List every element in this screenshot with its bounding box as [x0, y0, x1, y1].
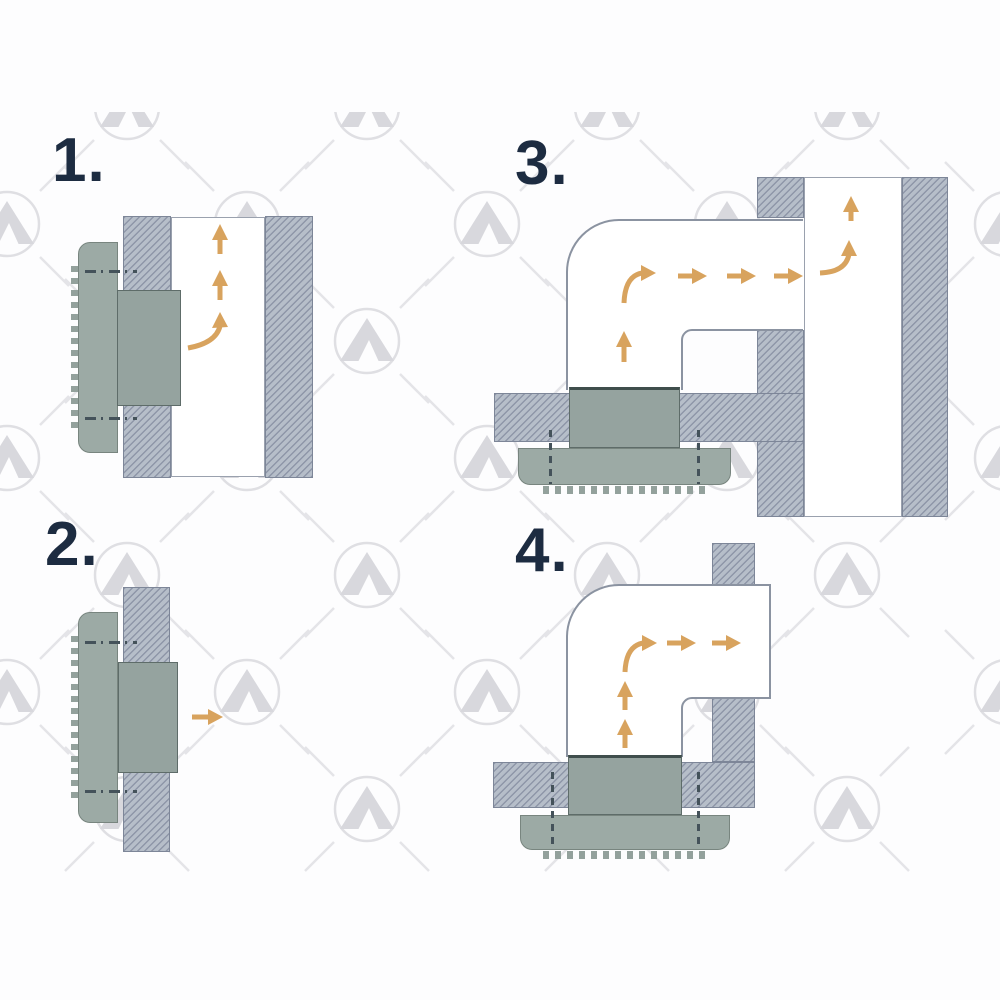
centerline-top-p2	[85, 641, 137, 644]
airflow-right-icon	[774, 268, 803, 284]
centerline-top-p1	[85, 270, 137, 273]
centerline-bottom-p1	[85, 417, 137, 420]
vent-louvres-p1	[71, 266, 78, 434]
centerline-left-p3	[549, 430, 552, 484]
vent-connector-p1	[117, 290, 181, 406]
step-3-label: 3.	[515, 133, 569, 195]
airflow-up-icon	[617, 681, 633, 710]
vent-connector-p4	[568, 755, 682, 815]
wall-stub-top-p4	[712, 543, 755, 585]
vent-connector-p3	[569, 387, 680, 448]
centerline-right-p3	[697, 430, 700, 484]
shaft-wall-right-p3	[902, 177, 948, 517]
airflow-right-icon	[192, 709, 223, 725]
shaft-wall-stub-top-p3	[757, 177, 804, 218]
centerline-left-p4	[551, 772, 554, 848]
step-1-label: 1.	[52, 130, 106, 192]
vent-louvres-p3	[543, 486, 709, 494]
wall-right-section-p1	[265, 216, 313, 478]
centerline-right-p4	[697, 772, 700, 848]
wall-column-p4	[712, 698, 755, 762]
vent-grille-p1	[78, 242, 118, 453]
centerline-bottom-p2	[85, 790, 137, 793]
airflow-curve-right-icon	[624, 265, 656, 303]
airflow-right-icon	[712, 635, 741, 651]
vertical-duct-channel-p1	[171, 217, 265, 477]
vertical-shaft-p3	[804, 177, 902, 517]
vent-connector-p2	[118, 662, 178, 773]
step-4-label: 4.	[515, 520, 569, 582]
airflow-right-icon	[667, 635, 696, 651]
airflow-curve-right-icon	[625, 635, 657, 672]
vent-louvres-p4	[543, 851, 709, 859]
airflow-right-icon	[727, 268, 756, 284]
vent-louvres-p2	[71, 636, 78, 804]
airflow-right-icon	[678, 268, 707, 284]
airflow-up-icon	[617, 719, 633, 748]
airflow-up-icon	[616, 331, 632, 362]
diagram-stage: 1. 2. 3. 4.	[0, 0, 1000, 1000]
step-2-label: 2.	[45, 514, 99, 576]
